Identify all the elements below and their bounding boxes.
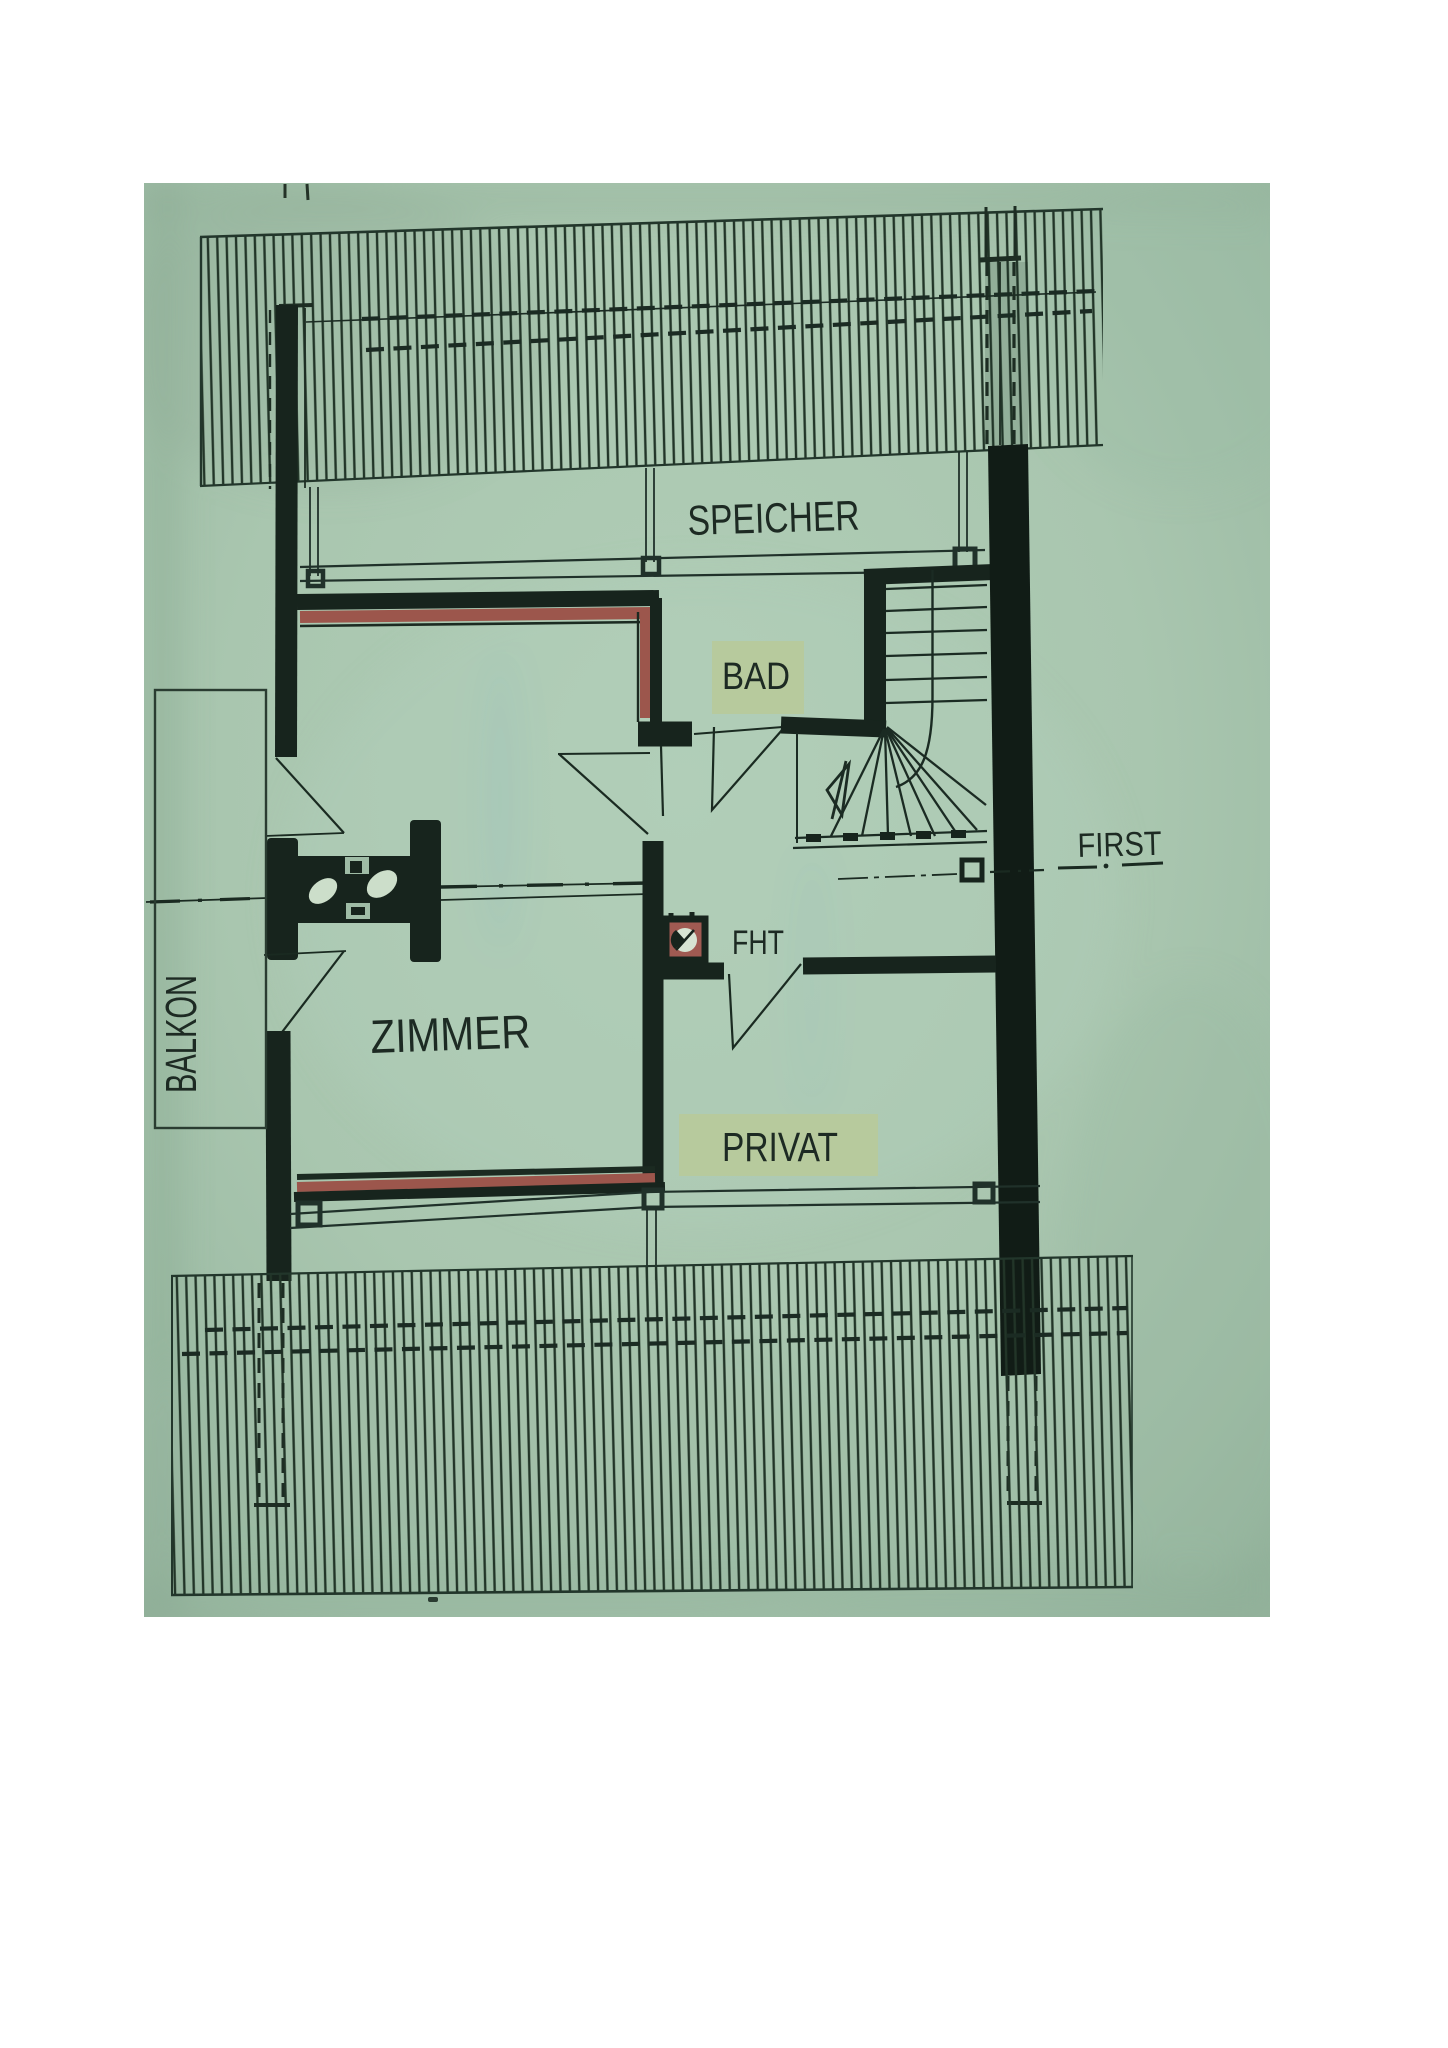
svg-text:FHT: FHT (732, 924, 784, 962)
svg-text:SPEICHER: SPEICHER (687, 492, 860, 544)
svg-text:BALKON: BALKON (157, 975, 206, 1093)
svg-text:ZIMMER: ZIMMER (369, 1004, 531, 1063)
svg-text:PRIVAT: PRIVAT (722, 1124, 838, 1170)
svg-text:FIRST: FIRST (1077, 825, 1162, 865)
svg-text:BAD: BAD (722, 656, 790, 698)
